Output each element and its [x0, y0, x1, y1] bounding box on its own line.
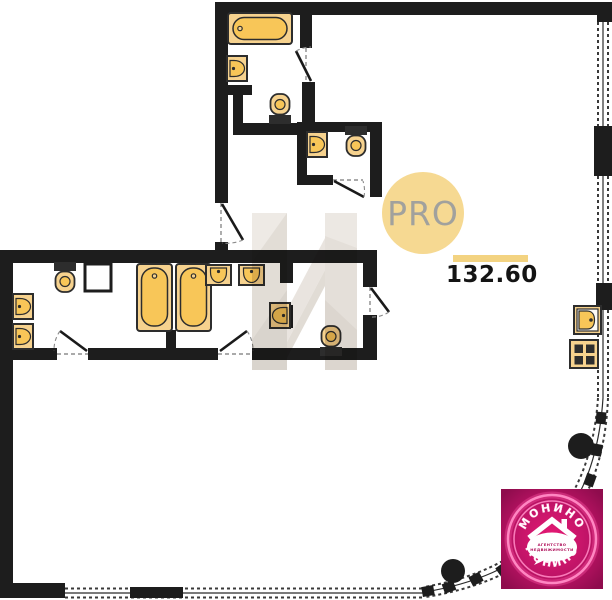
logo-tagline-line2: НЕДВИЖИМОСТИ [530, 547, 573, 552]
area-underline [453, 255, 528, 262]
floorplan-canvas: PRO 132.60 МОНИНО МОНИНО [0, 0, 612, 600]
area-value: 132.60 [446, 262, 536, 288]
agency-logo: МОНИНО МОНИНО АГЕНТСТВО НЕДВИЖИМОСТИ [501, 489, 603, 589]
pro-badge: PRO [382, 172, 464, 254]
pro-badge-label: PRO [387, 194, 459, 233]
